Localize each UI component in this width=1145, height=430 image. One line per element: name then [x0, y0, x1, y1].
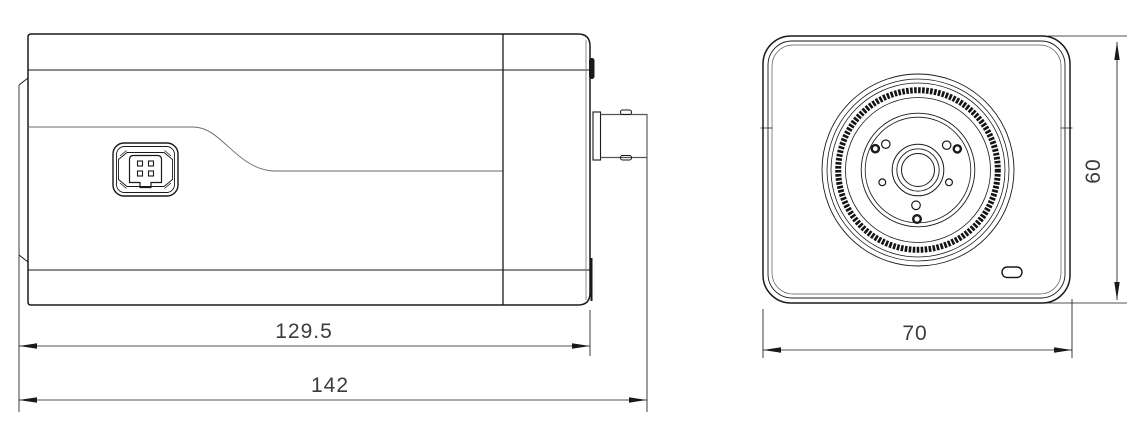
front-panel-outline-mid	[768, 41, 1065, 298]
accessory-connector	[113, 143, 178, 196]
knurled-focus-ring	[838, 90, 998, 250]
connector-pin	[149, 171, 154, 176]
arrowhead	[629, 397, 647, 402]
connector-socket-outline	[130, 156, 162, 188]
body-seam-curve	[28, 127, 503, 171]
screw-hole-dark	[913, 215, 921, 223]
front-panel-outline-outer	[763, 36, 1070, 303]
front-view	[761, 36, 1073, 303]
mount-ring-outer	[822, 74, 1014, 266]
connector-pin	[138, 161, 143, 166]
rear-top-latch	[589, 58, 595, 79]
bnc-connector	[593, 110, 647, 160]
connector-corner-chamfers	[120, 151, 171, 189]
arrowhead	[19, 397, 37, 402]
mount-ring-2	[827, 79, 1009, 261]
screw-hole	[946, 179, 953, 186]
screw-hole-dark	[954, 145, 961, 152]
dim-label-front-width: 70	[865, 322, 965, 346]
technical-drawing-canvas: 129.5 142 70 60	[0, 0, 1145, 430]
lens-aperture-mid	[897, 149, 939, 191]
arrowhead	[19, 343, 37, 348]
bnc-barrel	[601, 115, 647, 158]
lens-aperture-outer	[892, 144, 944, 196]
arrowhead	[763, 347, 781, 352]
bnc-flange	[593, 112, 601, 160]
dim-label-front-height: 60	[1082, 151, 1108, 191]
arrowhead	[1114, 42, 1119, 60]
side-view-dimensions	[19, 85, 647, 412]
arrowhead	[1114, 282, 1119, 300]
screw-hole	[879, 179, 886, 186]
lens-aperture-inner	[902, 154, 935, 187]
arrowhead	[572, 343, 590, 348]
mount-plate-holes	[872, 140, 961, 223]
camera-dimension-drawing	[0, 0, 1145, 430]
mount-ring-4	[846, 98, 991, 243]
mount-plate-inner	[865, 117, 971, 223]
side-view	[19, 34, 647, 305]
connector-pin	[149, 161, 154, 166]
dim-label-body-length: 129.5	[254, 320, 354, 344]
screw-hole	[882, 140, 890, 148]
dim-label-total-length: 142	[280, 374, 380, 398]
led-indicator-slot	[1002, 267, 1022, 278]
connector-pin	[138, 171, 143, 176]
mount-ring-3	[831, 83, 1005, 257]
front-view-dimensions	[763, 36, 1127, 358]
bnc-lug-top	[621, 110, 632, 115]
screw-hole	[943, 141, 951, 149]
arrowhead	[1054, 347, 1072, 352]
connector-chamfer-octagon	[119, 153, 173, 187]
screw-hole	[912, 201, 921, 210]
screw-hole-dark	[872, 145, 879, 152]
lens-mount-rings	[822, 74, 1014, 266]
front-bezel-edge	[19, 78, 28, 262]
